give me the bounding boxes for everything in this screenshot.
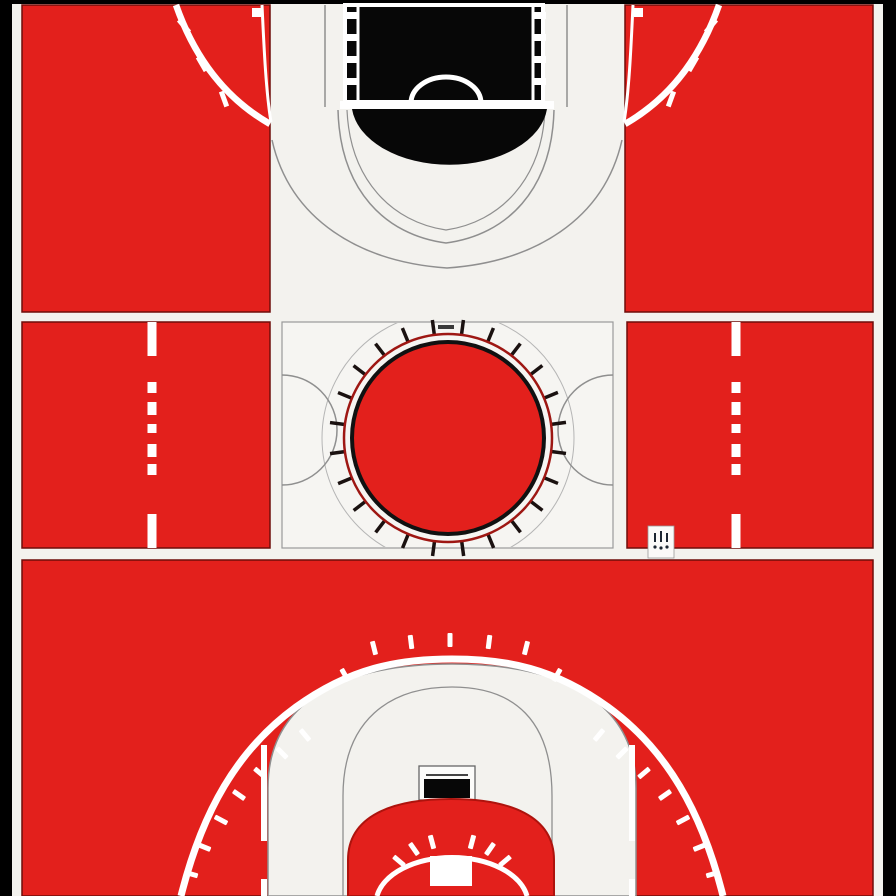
hash-mark — [534, 12, 546, 19]
lane-dash — [732, 514, 741, 548]
center-circle-tick — [461, 320, 463, 335]
middle-left-red-surface — [22, 322, 270, 548]
lane-dash — [732, 402, 741, 415]
lane-dash — [148, 424, 157, 433]
lane-dash — [732, 464, 741, 475]
center-circle — [352, 342, 544, 534]
lane-dash — [148, 514, 157, 548]
lane-dash — [732, 382, 741, 393]
lane-dash — [732, 322, 741, 356]
center-circle-tick — [462, 541, 464, 556]
center-court-panel — [22, 312, 873, 564]
lane-dash — [732, 424, 741, 433]
hash-mark — [534, 34, 546, 41]
top-right-red-surface — [625, 5, 873, 312]
free-throw-block — [430, 856, 472, 886]
center-circle-tick — [432, 320, 434, 335]
middle-right-red-surface — [627, 322, 873, 548]
crown-like-mark-icon — [653, 531, 668, 550]
hash-mark — [346, 78, 358, 85]
backboard — [419, 766, 475, 800]
lane-dash — [732, 444, 741, 457]
hash-mark — [346, 56, 358, 63]
free-throw-line — [340, 101, 554, 109]
hash-mark — [534, 56, 546, 63]
backboard-black-panel — [424, 779, 470, 798]
paint-area-black — [345, 5, 543, 102]
lane-dash — [148, 464, 157, 475]
logo-badge — [648, 526, 674, 558]
hash-mark — [534, 78, 546, 85]
lane-dash — [148, 382, 157, 393]
center-circle-tick — [433, 541, 435, 556]
hash-mark — [346, 34, 358, 41]
center-circle-tick — [330, 423, 345, 425]
bottom-half-court-panel — [22, 560, 873, 896]
center-circle-tick — [330, 452, 345, 454]
court-svg — [0, 0, 896, 896]
midcourt-notch — [438, 325, 454, 329]
top-left-red-surface — [22, 5, 270, 312]
lane-dash — [148, 402, 157, 415]
center-circle-tick — [551, 422, 566, 424]
lane-dash — [148, 322, 157, 356]
hash-mark — [346, 12, 358, 19]
center-circle-tick — [551, 451, 566, 453]
court-diagram — [0, 0, 896, 896]
lane-dash — [148, 444, 157, 457]
